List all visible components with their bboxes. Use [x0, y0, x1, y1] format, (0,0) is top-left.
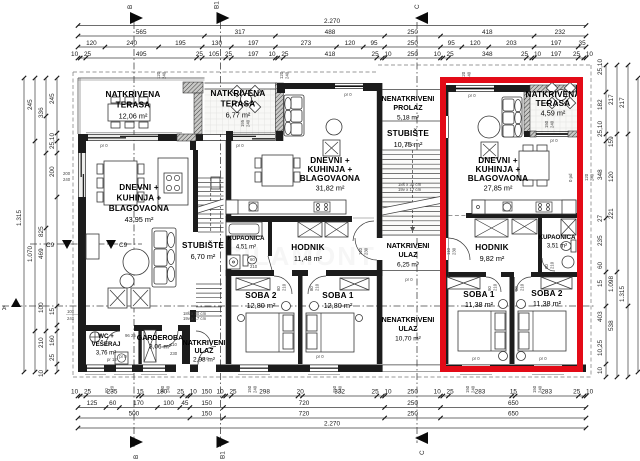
svg-text:KUHINJA +: KUHINJA +: [308, 165, 353, 174]
svg-text:25: 25: [372, 389, 380, 396]
svg-text:203: 203: [506, 40, 517, 47]
svg-text:25: 25: [447, 389, 455, 396]
svg-text:10: 10: [384, 51, 392, 58]
svg-text:TERASA: TERASA: [221, 100, 256, 109]
svg-text:C9: C9: [119, 242, 128, 249]
svg-text:110: 110: [170, 342, 177, 347]
svg-text:240: 240: [590, 173, 595, 181]
svg-text:25: 25: [281, 51, 289, 58]
svg-text:25,10: 25,10: [49, 133, 56, 149]
svg-text:4,59 m²: 4,59 m²: [541, 109, 566, 118]
svg-text:BLAGOVAONA: BLAGOVAONA: [468, 174, 529, 183]
svg-text:200: 200: [49, 166, 56, 177]
svg-text:NATKRIVENI: NATKRIVENI: [387, 242, 430, 250]
svg-text:10: 10: [38, 369, 45, 377]
svg-text:210: 210: [250, 264, 258, 269]
svg-text:159: 159: [608, 136, 615, 147]
svg-text:130: 130: [211, 40, 222, 47]
svg-text:197: 197: [551, 51, 562, 58]
svg-text:180: 180: [157, 389, 168, 396]
svg-text:120: 120: [345, 40, 356, 47]
svg-text:10: 10: [586, 389, 594, 396]
svg-text:217: 217: [619, 97, 626, 108]
svg-text:NATKRIVENA: NATKRIVENA: [525, 90, 580, 99]
svg-text:650: 650: [508, 400, 519, 407]
svg-text:150: 150: [201, 389, 212, 396]
svg-text:96 25: 96 25: [125, 333, 136, 338]
svg-text:BLAGOVAONA: BLAGOVAONA: [300, 174, 361, 183]
svg-text:240: 240: [126, 40, 137, 47]
svg-text:1.070: 1.070: [27, 246, 34, 262]
svg-text:197: 197: [551, 40, 562, 47]
svg-text:120: 120: [86, 40, 97, 47]
svg-text:150: 150: [465, 385, 470, 393]
svg-text:240: 240: [253, 385, 258, 393]
svg-text:pr 0: pr 0: [550, 138, 558, 143]
svg-text:19v x 17 cm: 19v x 17 cm: [183, 316, 207, 321]
svg-text:720: 720: [299, 411, 310, 418]
svg-text:NENATKRIVENI: NENATKRIVENI: [382, 95, 435, 103]
svg-text:210: 210: [520, 283, 525, 291]
svg-text:348: 348: [482, 51, 493, 58]
svg-text:pr 12: pr 12: [107, 357, 117, 362]
svg-text:TERASA: TERASA: [116, 101, 151, 110]
svg-text:1.315: 1.315: [16, 210, 23, 226]
svg-text:250: 250: [407, 411, 418, 418]
svg-text:pr 0: pr 0: [406, 142, 414, 147]
svg-text:538: 538: [608, 320, 615, 331]
svg-text:SOBA 1: SOBA 1: [322, 291, 354, 300]
svg-text:250: 250: [407, 29, 418, 36]
svg-text:ULAZ: ULAZ: [399, 251, 419, 259]
svg-text:NATKRIVENI: NATKRIVENI: [183, 339, 226, 347]
svg-text:25: 25: [49, 353, 56, 361]
svg-text:105: 105: [209, 51, 220, 58]
svg-text:336: 336: [38, 107, 45, 118]
svg-text:C9: C9: [46, 242, 55, 249]
svg-text:150: 150: [201, 400, 212, 407]
svg-text:DNEVNI +: DNEVNI +: [310, 156, 350, 165]
svg-text:10: 10: [534, 51, 542, 58]
svg-text:SOBA 2: SOBA 2: [245, 291, 277, 300]
svg-text:12,80 m²: 12,80 m²: [324, 301, 353, 310]
svg-text:232: 232: [555, 29, 566, 36]
svg-text:90: 90: [487, 286, 492, 291]
svg-text:B1: B1: [214, 1, 221, 9]
svg-text:150: 150: [532, 385, 537, 393]
svg-text:2.270: 2.270: [324, 421, 340, 428]
svg-text:160: 160: [49, 335, 56, 346]
svg-text:DNEVNI +: DNEVNI +: [478, 156, 518, 165]
svg-text:120: 120: [156, 71, 161, 79]
svg-text:10,25: 10,25: [597, 340, 604, 356]
svg-text:1.098: 1.098: [608, 276, 615, 292]
svg-text:0 pd: 0 pd: [568, 173, 573, 182]
svg-text:KUHINJA +: KUHINJA +: [476, 165, 521, 174]
svg-text:250: 250: [407, 389, 418, 396]
svg-text:KUPAONICA: KUPAONICA: [538, 234, 576, 241]
svg-text:80: 80: [309, 286, 314, 291]
svg-text:210: 210: [493, 283, 498, 291]
svg-text:10: 10: [268, 51, 276, 58]
svg-text:DNEVNI +: DNEVNI +: [119, 183, 159, 192]
svg-text:495: 495: [136, 51, 147, 58]
svg-text:60: 60: [597, 261, 604, 269]
svg-text:317: 317: [235, 29, 246, 36]
svg-text:25,10: 25,10: [597, 121, 604, 137]
svg-text:6,70 m²: 6,70 m²: [191, 252, 216, 261]
svg-text:120: 120: [584, 173, 589, 181]
svg-text:120: 120: [470, 40, 481, 47]
svg-text:650: 650: [508, 411, 519, 418]
svg-text:182: 182: [597, 99, 604, 110]
svg-text:pr 0: pr 0: [201, 356, 209, 361]
svg-text:pr 0: pr 0: [236, 143, 244, 148]
svg-text:10: 10: [597, 366, 604, 374]
svg-text:12,80 m²: 12,80 m²: [247, 301, 276, 310]
svg-text:348: 348: [597, 169, 604, 180]
svg-text:NATKRIVENA: NATKRIVENA: [210, 89, 265, 98]
svg-text:230: 230: [452, 247, 457, 255]
svg-text:210: 210: [550, 261, 555, 269]
svg-text:250: 250: [407, 400, 418, 407]
svg-text:6,77 m²: 6,77 m²: [226, 111, 251, 120]
svg-text:3,06 m²: 3,06 m²: [149, 344, 172, 351]
svg-text:197: 197: [248, 40, 259, 47]
svg-text:240: 240: [550, 120, 555, 128]
svg-text:45: 45: [181, 400, 189, 407]
svg-text:825: 825: [38, 226, 45, 237]
svg-text:27,85 m²: 27,85 m²: [484, 184, 513, 193]
svg-text:3,76 m²: 3,76 m²: [96, 351, 116, 357]
svg-text:100: 100: [38, 302, 45, 313]
svg-text:95: 95: [448, 40, 456, 47]
svg-text:15: 15: [137, 389, 145, 396]
svg-text:KUHINJA +: KUHINJA +: [117, 194, 162, 203]
svg-text:10: 10: [586, 51, 594, 58]
svg-text:469: 469: [38, 248, 45, 259]
svg-text:418: 418: [325, 51, 336, 58]
svg-text:197: 197: [248, 51, 259, 58]
svg-text:210: 210: [38, 337, 45, 348]
svg-text:BLAGOVAONA: BLAGOVAONA: [109, 204, 170, 213]
svg-text:pr 0: pr 0: [539, 356, 547, 361]
svg-text:720: 720: [299, 400, 310, 407]
svg-text:120: 120: [279, 71, 284, 79]
svg-text:25: 25: [573, 51, 581, 58]
svg-text:11,48 m²: 11,48 m²: [294, 254, 323, 263]
svg-text:60: 60: [109, 400, 117, 407]
svg-text:25: 25: [372, 51, 380, 58]
svg-text:pr 0: pr 0: [405, 277, 413, 282]
svg-text:25: 25: [573, 389, 581, 396]
svg-text:230: 230: [364, 247, 369, 255]
svg-text:273: 273: [301, 40, 312, 47]
svg-text:25: 25: [521, 51, 529, 58]
svg-text:210: 210: [315, 283, 320, 291]
svg-text:150: 150: [247, 385, 252, 393]
svg-text:95: 95: [370, 40, 378, 47]
svg-text:SOBA 2: SOBA 2: [531, 289, 563, 298]
svg-text:235: 235: [597, 235, 604, 246]
svg-text:120: 120: [608, 171, 615, 182]
svg-text:250: 250: [407, 40, 418, 47]
svg-text:200: 200: [63, 171, 71, 176]
svg-text:25: 25: [447, 51, 455, 58]
svg-text:195: 195: [240, 119, 245, 127]
svg-text:KUPAONICA: KUPAONICA: [227, 235, 265, 242]
svg-text:STUBIŠTE: STUBIŠTE: [182, 239, 224, 250]
svg-text:GARDEROBA: GARDEROBA: [137, 334, 184, 342]
svg-text:43,95 m²: 43,95 m²: [125, 215, 154, 224]
svg-text:25: 25: [84, 51, 92, 58]
svg-text:HODNIK: HODNIK: [291, 243, 325, 252]
svg-text:25: 25: [84, 389, 92, 396]
svg-text:ULAZ: ULAZ: [195, 347, 215, 355]
svg-text:170: 170: [133, 400, 144, 407]
svg-text:488: 488: [325, 29, 336, 36]
svg-text:25: 25: [225, 51, 233, 58]
svg-text:221: 221: [608, 208, 615, 219]
svg-text:150: 150: [544, 120, 549, 128]
svg-text:C: C: [419, 450, 426, 455]
svg-text:418: 418: [482, 29, 493, 36]
svg-text:WC +: WC +: [98, 333, 114, 340]
svg-text:245: 245: [49, 93, 56, 104]
svg-text:PROLAZ: PROLAZ: [393, 104, 423, 112]
svg-text:250: 250: [407, 51, 418, 58]
svg-text:15: 15: [49, 307, 56, 315]
svg-text:ULAZ: ULAZ: [399, 325, 419, 333]
svg-text:403: 403: [597, 311, 604, 322]
svg-text:60: 60: [544, 264, 549, 269]
svg-text:19v x 17 cm: 19v x 17 cm: [398, 187, 422, 192]
svg-text:25,10: 25,10: [597, 59, 604, 75]
svg-text:240: 240: [162, 71, 167, 79]
svg-text:283: 283: [475, 389, 486, 396]
svg-text:pr 0: pr 0: [316, 354, 324, 359]
svg-text:1.315: 1.315: [619, 286, 626, 302]
svg-text:235: 235: [107, 389, 118, 396]
svg-text:25: 25: [229, 389, 237, 396]
svg-text:10: 10: [190, 389, 198, 396]
svg-text:20: 20: [297, 389, 305, 396]
svg-text:5,18 m²: 5,18 m²: [397, 115, 420, 122]
svg-text:pr 0: pr 0: [468, 93, 476, 98]
svg-text:100: 100: [67, 309, 75, 314]
svg-text:332: 332: [334, 389, 345, 396]
svg-text:10,70 m²: 10,70 m²: [395, 336, 421, 343]
svg-text:240: 240: [67, 316, 75, 321]
svg-text:VEŠERAJ: VEŠERAJ: [92, 340, 121, 348]
svg-text:B: B: [133, 455, 140, 459]
svg-text:11,38 m²: 11,38 m²: [465, 300, 494, 309]
svg-text:12,06 m²: 12,06 m²: [119, 112, 148, 121]
svg-text:25: 25: [177, 389, 185, 396]
svg-text:10: 10: [434, 389, 442, 396]
svg-text:31,82 m²: 31,82 m²: [316, 184, 345, 193]
svg-text:25: 25: [196, 51, 204, 58]
svg-text:15: 15: [597, 279, 604, 287]
svg-text:10: 10: [384, 389, 392, 396]
svg-text:110: 110: [358, 248, 363, 255]
svg-text:15: 15: [510, 389, 518, 396]
svg-text:pr 0: pr 0: [472, 356, 480, 361]
svg-text:125: 125: [87, 400, 98, 407]
svg-text:6,25 m²: 6,25 m²: [397, 262, 420, 269]
svg-text:35: 35: [579, 40, 587, 47]
svg-text:4,51 m²: 4,51 m²: [236, 245, 256, 251]
svg-text:10: 10: [71, 51, 79, 58]
svg-text:283: 283: [541, 389, 552, 396]
svg-text:500: 500: [129, 411, 140, 418]
svg-text:217: 217: [608, 94, 615, 105]
svg-text:2.270: 2.270: [324, 18, 340, 25]
svg-text:195: 195: [175, 40, 186, 47]
svg-text:HODNIK: HODNIK: [475, 243, 509, 252]
svg-text:240: 240: [285, 71, 290, 79]
svg-text:A: A: [2, 305, 7, 312]
svg-text:80: 80: [276, 286, 281, 291]
svg-text:60: 60: [250, 257, 255, 262]
svg-text:STUBIŠTE: STUBIŠTE: [387, 127, 429, 138]
svg-text:565: 565: [136, 29, 147, 36]
svg-text:B: B: [127, 5, 134, 9]
svg-text:TERASA: TERASA: [536, 99, 571, 108]
svg-text:10: 10: [71, 389, 79, 396]
svg-text:110: 110: [446, 248, 451, 255]
svg-text:NATKRIVENA: NATKRIVENA: [105, 90, 160, 99]
svg-text:9,82 m²: 9,82 m²: [480, 254, 505, 263]
svg-text:150: 150: [201, 411, 212, 418]
svg-text:3,51 m²: 3,51 m²: [547, 244, 567, 250]
svg-text:100: 100: [163, 400, 174, 407]
svg-text:298: 298: [259, 389, 270, 396]
svg-text:240: 240: [63, 177, 71, 182]
svg-text:pr 0: pr 0: [344, 92, 352, 97]
svg-text:C: C: [414, 4, 421, 9]
svg-text:27: 27: [597, 214, 604, 222]
svg-text:10: 10: [217, 389, 225, 396]
svg-text:pr 0: pr 0: [100, 143, 108, 148]
svg-text:245: 245: [27, 99, 34, 110]
svg-text:11,38 m²: 11,38 m²: [533, 299, 562, 308]
svg-text:240: 240: [246, 119, 251, 127]
svg-text:B1: B1: [220, 451, 227, 459]
svg-text:pr 0: pr 0: [119, 354, 127, 359]
svg-text:80: 80: [514, 286, 519, 291]
svg-text:10: 10: [434, 51, 442, 58]
svg-text:230: 230: [170, 351, 178, 356]
svg-text:NENATKRIVENI: NENATKRIVENI: [382, 316, 435, 324]
svg-text:210: 210: [282, 283, 287, 291]
